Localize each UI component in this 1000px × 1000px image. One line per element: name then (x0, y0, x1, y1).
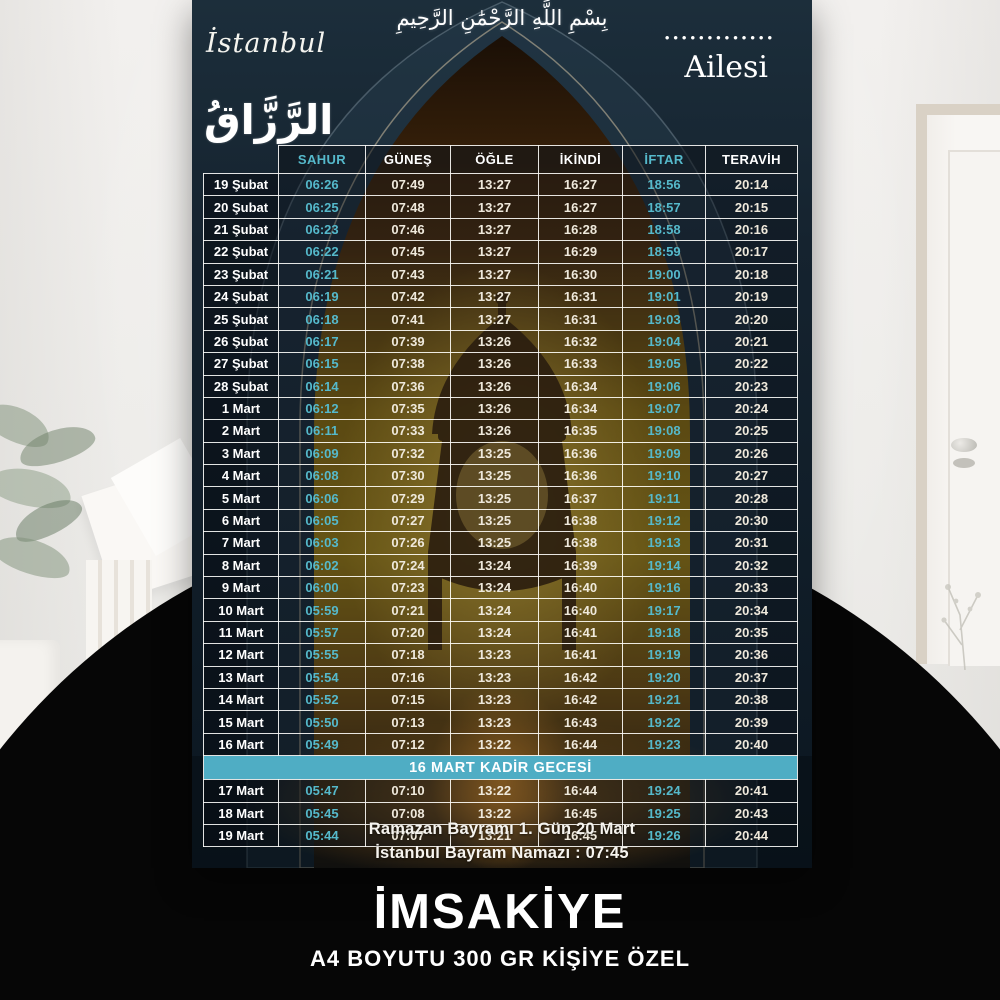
time-cell: 16:44 (539, 733, 623, 755)
product-mockup: İstanbul بِسْمِ اللَّهِ الرَّحْمَٰنِ الر… (0, 0, 1000, 1000)
time-cell: 13:27 (451, 218, 539, 240)
time-cell: 19:06 (623, 375, 706, 397)
time-cell: 13:25 (451, 487, 539, 509)
time-cell: 07:21 (366, 599, 451, 621)
time-cell: 07:48 (366, 196, 451, 218)
kadir-gecesi-banner: 16 MART KADİR GECESİ (204, 756, 798, 780)
time-cell: 07:10 (366, 780, 451, 802)
time-cell: 13:26 (451, 397, 539, 419)
time-cell: 13:23 (451, 644, 539, 666)
time-cell: 16:41 (539, 621, 623, 643)
time-cell: 05:54 (279, 666, 366, 688)
time-cell: 07:35 (366, 397, 451, 419)
family-name-label: Ailesi (684, 50, 768, 85)
time-cell: 13:24 (451, 621, 539, 643)
time-cell: 18:58 (623, 218, 706, 240)
time-cell: 05:47 (279, 780, 366, 802)
time-cell: 06:25 (279, 196, 366, 218)
time-cell: 13:23 (451, 711, 539, 733)
city-script-label: İstanbul (206, 28, 326, 59)
table-row: 1 Mart06:1207:3513:2616:3419:0720:24 (204, 397, 798, 419)
time-cell: 13:25 (451, 465, 539, 487)
time-cell: 07:42 (366, 285, 451, 307)
time-cell: 16:34 (539, 397, 623, 419)
table-row: 7 Mart06:0307:2613:2516:3819:1320:31 (204, 532, 798, 554)
table-row: 8 Mart06:0207:2413:2416:3919:1420:32 (204, 554, 798, 576)
time-cell: 16:43 (539, 711, 623, 733)
time-cell: 06:23 (279, 218, 366, 240)
time-cell: 20:34 (706, 599, 798, 621)
time-cell: 20:20 (706, 308, 798, 330)
header-ogle: ÖĞLE (451, 146, 539, 174)
header-iftar: İFTAR (623, 146, 706, 174)
time-cell: 19:00 (623, 263, 706, 285)
product-title: İMSAKİYE (0, 884, 1000, 940)
date-cell: 7 Mart (204, 532, 279, 554)
time-cell: 20:18 (706, 263, 798, 285)
time-cell: 07:43 (366, 263, 451, 285)
time-cell: 13:27 (451, 308, 539, 330)
time-cell: 16:41 (539, 644, 623, 666)
time-cell: 19:17 (623, 599, 706, 621)
time-cell: 06:09 (279, 442, 366, 464)
time-cell: 06:26 (279, 174, 366, 196)
time-cell: 16:38 (539, 509, 623, 531)
date-cell: 17 Mart (204, 780, 279, 802)
date-cell: 10 Mart (204, 599, 279, 621)
time-cell: 19:07 (623, 397, 706, 419)
time-cell: 13:22 (451, 733, 539, 755)
time-cell: 20:30 (706, 509, 798, 531)
prayer-table-body: 19 Şubat06:2607:4913:2716:2718:5620:1420… (204, 174, 798, 847)
time-cell: 07:49 (366, 174, 451, 196)
time-cell: 18:57 (623, 196, 706, 218)
time-cell: 07:38 (366, 353, 451, 375)
time-cell: 16:34 (539, 375, 623, 397)
time-cell: 13:26 (451, 353, 539, 375)
table-row: 11 Mart05:5707:2013:2416:4119:1820:35 (204, 621, 798, 643)
time-cell: 05:52 (279, 688, 366, 710)
time-cell: 13:24 (451, 577, 539, 599)
date-cell: 6 Mart (204, 509, 279, 531)
time-cell: 13:26 (451, 375, 539, 397)
arrazzaq-calligraphy: الرَّزَّاقُ (204, 96, 333, 144)
time-cell: 16:40 (539, 577, 623, 599)
header-sahur: SAHUR (279, 146, 366, 174)
time-cell: 16:38 (539, 532, 623, 554)
header-teravih: TERAVİH (706, 146, 798, 174)
time-cell: 16:31 (539, 285, 623, 307)
dried-plant (930, 575, 1000, 670)
time-cell: 07:13 (366, 711, 451, 733)
time-cell: 13:23 (451, 688, 539, 710)
time-cell: 16:31 (539, 308, 623, 330)
time-cell: 19:01 (623, 285, 706, 307)
time-cell: 06:14 (279, 375, 366, 397)
date-cell: 27 Şubat (204, 353, 279, 375)
time-cell: 19:04 (623, 330, 706, 352)
table-row: 20 Şubat06:2507:4813:2716:2718:5720:15 (204, 196, 798, 218)
imsakiye-poster: İstanbul بِسْمِ اللَّهِ الرَّحْمَٰنِ الر… (192, 0, 812, 868)
time-cell: 20:32 (706, 554, 798, 576)
time-cell: 13:22 (451, 780, 539, 802)
table-row: 2 Mart06:1107:3313:2616:3519:0820:25 (204, 420, 798, 442)
banner-row: 16 MART KADİR GECESİ (204, 756, 798, 780)
time-cell: 20:37 (706, 666, 798, 688)
date-cell: 19 Şubat (204, 174, 279, 196)
table-row: 23 Şubat06:2107:4313:2716:3019:0020:18 (204, 263, 798, 285)
time-cell: 06:22 (279, 241, 366, 263)
time-cell: 20:26 (706, 442, 798, 464)
bayram-line-1: Ramazan Bayramı 1. Gün 20 Mart (192, 818, 812, 842)
time-cell: 07:27 (366, 509, 451, 531)
time-cell: 06:19 (279, 285, 366, 307)
time-cell: 16:35 (539, 420, 623, 442)
time-cell: 20:24 (706, 397, 798, 419)
time-cell: 05:50 (279, 711, 366, 733)
date-cell: 14 Mart (204, 688, 279, 710)
time-cell: 07:20 (366, 621, 451, 643)
time-cell: 06:00 (279, 577, 366, 599)
time-cell: 20:14 (706, 174, 798, 196)
time-cell: 07:46 (366, 218, 451, 240)
time-cell: 20:40 (706, 733, 798, 755)
time-cell: 19:19 (623, 644, 706, 666)
time-cell: 19:03 (623, 308, 706, 330)
prayer-times-table: SAHUR GÜNEŞ ÖĞLE İKİNDİ İFTAR TERAVİH 19… (203, 145, 798, 847)
date-cell: 24 Şubat (204, 285, 279, 307)
time-cell: 16:30 (539, 263, 623, 285)
table-row: 27 Şubat06:1507:3813:2616:3319:0520:22 (204, 353, 798, 375)
table-row: 12 Mart05:5507:1813:2316:4119:1920:36 (204, 644, 798, 666)
time-cell: 07:36 (366, 375, 451, 397)
table-header-row: SAHUR GÜNEŞ ÖĞLE İKİNDİ İFTAR TERAVİH (204, 146, 798, 174)
time-cell: 20:28 (706, 487, 798, 509)
date-cell: 15 Mart (204, 711, 279, 733)
time-cell: 13:27 (451, 263, 539, 285)
table-row: 26 Şubat06:1707:3913:2616:3219:0420:21 (204, 330, 798, 352)
time-cell: 07:30 (366, 465, 451, 487)
time-cell: 07:24 (366, 554, 451, 576)
time-cell: 20:36 (706, 644, 798, 666)
date-cell: 12 Mart (204, 644, 279, 666)
table-row: 15 Mart05:5007:1313:2316:4319:2220:39 (204, 711, 798, 733)
time-cell: 13:25 (451, 442, 539, 464)
time-cell: 20:15 (706, 196, 798, 218)
door-handle (951, 438, 977, 452)
date-cell: 2 Mart (204, 420, 279, 442)
time-cell: 13:25 (451, 532, 539, 554)
table-row: 17 Mart05:4707:1013:2216:4419:2420:41 (204, 780, 798, 802)
time-cell: 13:26 (451, 330, 539, 352)
time-cell: 06:08 (279, 465, 366, 487)
table-row: 16 Mart05:4907:1213:2216:4419:2320:40 (204, 733, 798, 755)
table-row: 5 Mart06:0607:2913:2516:3719:1120:28 (204, 487, 798, 509)
date-cell: 11 Mart (204, 621, 279, 643)
time-cell: 20:27 (706, 465, 798, 487)
table-row: 4 Mart06:0807:3013:2516:3619:1020:27 (204, 465, 798, 487)
time-cell: 16:27 (539, 196, 623, 218)
bismillah-calligraphy: بِسْمِ اللَّهِ الرَّحْمَٰنِ الرَّحِيمِ (192, 6, 812, 30)
time-cell: 06:12 (279, 397, 366, 419)
time-cell: 16:33 (539, 353, 623, 375)
time-cell: 13:24 (451, 554, 539, 576)
time-cell: 20:35 (706, 621, 798, 643)
time-cell: 07:32 (366, 442, 451, 464)
time-cell: 16:36 (539, 442, 623, 464)
time-cell: 19:10 (623, 465, 706, 487)
time-cell: 05:59 (279, 599, 366, 621)
time-cell: 16:32 (539, 330, 623, 352)
time-cell: 07:16 (366, 666, 451, 688)
time-cell: 13:25 (451, 509, 539, 531)
time-cell: 19:24 (623, 780, 706, 802)
date-cell: 25 Şubat (204, 308, 279, 330)
table-row: 9 Mart06:0007:2313:2416:4019:1620:33 (204, 577, 798, 599)
time-cell: 18:56 (623, 174, 706, 196)
bayram-line-2: İstanbul Bayram Namazı : 07:45 (192, 842, 812, 866)
time-cell: 20:22 (706, 353, 798, 375)
time-cell: 20:33 (706, 577, 798, 599)
dots-separator: ••••••••••••• (665, 30, 776, 45)
time-cell: 06:11 (279, 420, 366, 442)
time-cell: 13:27 (451, 196, 539, 218)
time-cell: 19:05 (623, 353, 706, 375)
table-row: 21 Şubat06:2307:4613:2716:2818:5820:16 (204, 218, 798, 240)
time-cell: 20:17 (706, 241, 798, 263)
time-cell: 05:55 (279, 644, 366, 666)
date-cell: 20 Şubat (204, 196, 279, 218)
time-cell: 16:37 (539, 487, 623, 509)
date-cell: 16 Mart (204, 733, 279, 755)
time-cell: 07:15 (366, 688, 451, 710)
time-cell: 20:19 (706, 285, 798, 307)
time-cell: 19:18 (623, 621, 706, 643)
date-cell: 8 Mart (204, 554, 279, 576)
time-cell: 13:27 (451, 241, 539, 263)
time-cell: 13:27 (451, 174, 539, 196)
time-cell: 16:40 (539, 599, 623, 621)
time-cell: 16:28 (539, 218, 623, 240)
time-cell: 13:27 (451, 285, 539, 307)
time-cell: 19:12 (623, 509, 706, 531)
time-cell: 07:12 (366, 733, 451, 755)
table-row: 25 Şubat06:1807:4113:2716:3119:0320:20 (204, 308, 798, 330)
empty-header-cell (204, 146, 279, 174)
table-row: 19 Şubat06:2607:4913:2716:2718:5620:14 (204, 174, 798, 196)
time-cell: 20:39 (706, 711, 798, 733)
time-cell: 19:11 (623, 487, 706, 509)
time-cell: 20:23 (706, 375, 798, 397)
time-cell: 19:08 (623, 420, 706, 442)
date-cell: 3 Mart (204, 442, 279, 464)
time-cell: 13:23 (451, 666, 539, 688)
table-row: 24 Şubat06:1907:4213:2716:3119:0120:19 (204, 285, 798, 307)
time-cell: 19:22 (623, 711, 706, 733)
product-subtitle: A4 BOYUTU 300 GR KİŞİYE ÖZEL (0, 946, 1000, 972)
date-cell: 21 Şubat (204, 218, 279, 240)
time-cell: 07:18 (366, 644, 451, 666)
date-cell: 23 Şubat (204, 263, 279, 285)
time-cell: 06:15 (279, 353, 366, 375)
time-cell: 07:33 (366, 420, 451, 442)
time-cell: 20:16 (706, 218, 798, 240)
time-cell: 20:38 (706, 688, 798, 710)
time-cell: 20:31 (706, 532, 798, 554)
date-cell: 28 Şubat (204, 375, 279, 397)
header-ikindi: İKİNDİ (539, 146, 623, 174)
time-cell: 07:26 (366, 532, 451, 554)
date-cell: 9 Mart (204, 577, 279, 599)
time-cell: 07:45 (366, 241, 451, 263)
header-gunes: GÜNEŞ (366, 146, 451, 174)
time-cell: 16:36 (539, 465, 623, 487)
date-cell: 4 Mart (204, 465, 279, 487)
date-cell: 26 Şubat (204, 330, 279, 352)
table-row: 3 Mart06:0907:3213:2516:3619:0920:26 (204, 442, 798, 464)
time-cell: 07:39 (366, 330, 451, 352)
time-cell: 16:44 (539, 780, 623, 802)
time-cell: 18:59 (623, 241, 706, 263)
time-cell: 19:14 (623, 554, 706, 576)
time-cell: 06:21 (279, 263, 366, 285)
time-cell: 19:20 (623, 666, 706, 688)
table-row: 6 Mart06:0507:2713:2516:3819:1220:30 (204, 509, 798, 531)
time-cell: 20:41 (706, 780, 798, 802)
date-cell: 5 Mart (204, 487, 279, 509)
time-cell: 16:29 (539, 241, 623, 263)
time-cell: 07:23 (366, 577, 451, 599)
bayram-note: Ramazan Bayramı 1. Gün 20 Mart İstanbul … (192, 818, 812, 866)
time-cell: 16:39 (539, 554, 623, 576)
time-cell: 06:17 (279, 330, 366, 352)
time-cell: 06:02 (279, 554, 366, 576)
time-cell: 16:27 (539, 174, 623, 196)
time-cell: 13:26 (451, 420, 539, 442)
time-cell: 06:03 (279, 532, 366, 554)
time-cell: 13:24 (451, 599, 539, 621)
date-cell: 1 Mart (204, 397, 279, 419)
table-row: 28 Şubat06:1407:3613:2616:3419:0620:23 (204, 375, 798, 397)
time-cell: 06:05 (279, 509, 366, 531)
table-row: 10 Mart05:5907:2113:2416:4019:1720:34 (204, 599, 798, 621)
table-row: 13 Mart05:5407:1613:2316:4219:2020:37 (204, 666, 798, 688)
time-cell: 20:25 (706, 420, 798, 442)
time-cell: 19:21 (623, 688, 706, 710)
time-cell: 16:42 (539, 666, 623, 688)
date-cell: 22 Şubat (204, 241, 279, 263)
time-cell: 06:06 (279, 487, 366, 509)
table-row: 14 Mart05:5207:1513:2316:4219:2120:38 (204, 688, 798, 710)
time-cell: 07:29 (366, 487, 451, 509)
time-cell: 05:57 (279, 621, 366, 643)
time-cell: 16:42 (539, 688, 623, 710)
time-cell: 19:09 (623, 442, 706, 464)
date-cell: 13 Mart (204, 666, 279, 688)
time-cell: 19:13 (623, 532, 706, 554)
time-cell: 06:18 (279, 308, 366, 330)
time-cell: 05:49 (279, 733, 366, 755)
time-cell: 19:16 (623, 577, 706, 599)
time-cell: 07:41 (366, 308, 451, 330)
time-cell: 20:21 (706, 330, 798, 352)
time-cell: 19:23 (623, 733, 706, 755)
table-row: 22 Şubat06:2207:4513:2716:2918:5920:17 (204, 241, 798, 263)
